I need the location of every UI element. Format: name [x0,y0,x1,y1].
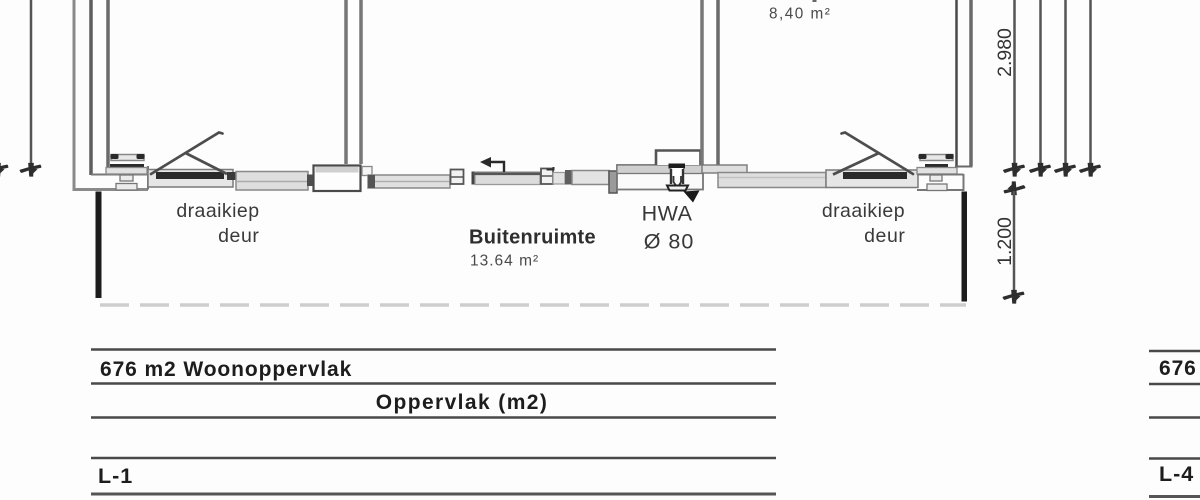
svg-text:Oppervlak (m2): Oppervlak (m2) [376,391,549,414]
svg-text:L-4: L-4 [1159,462,1194,486]
svg-text:draaikiep: draaikiep [176,200,259,222]
svg-text:1.200: 1.200 [994,217,1016,266]
svg-text:deur: deur [218,225,259,247]
svg-text:draaikiep: draaikiep [822,200,905,222]
svg-text:Ø 80: Ø 80 [644,230,695,254]
svg-text:13.64 m²: 13.64 m² [470,253,539,270]
svg-text:676: 676 [1159,357,1197,380]
svg-text:Buitenruimte: Buitenruimte [469,227,596,249]
svg-text:8,40 m²: 8,40 m² [769,6,831,23]
svg-text:2.980: 2.980 [994,28,1016,77]
svg-text:deur: deur [864,225,905,247]
svg-text:L-1: L-1 [98,464,133,488]
svg-text:676 m2 Woonoppervlak: 676 m2 Woonoppervlak [100,358,352,381]
svg-text:HWA: HWA [642,202,693,226]
